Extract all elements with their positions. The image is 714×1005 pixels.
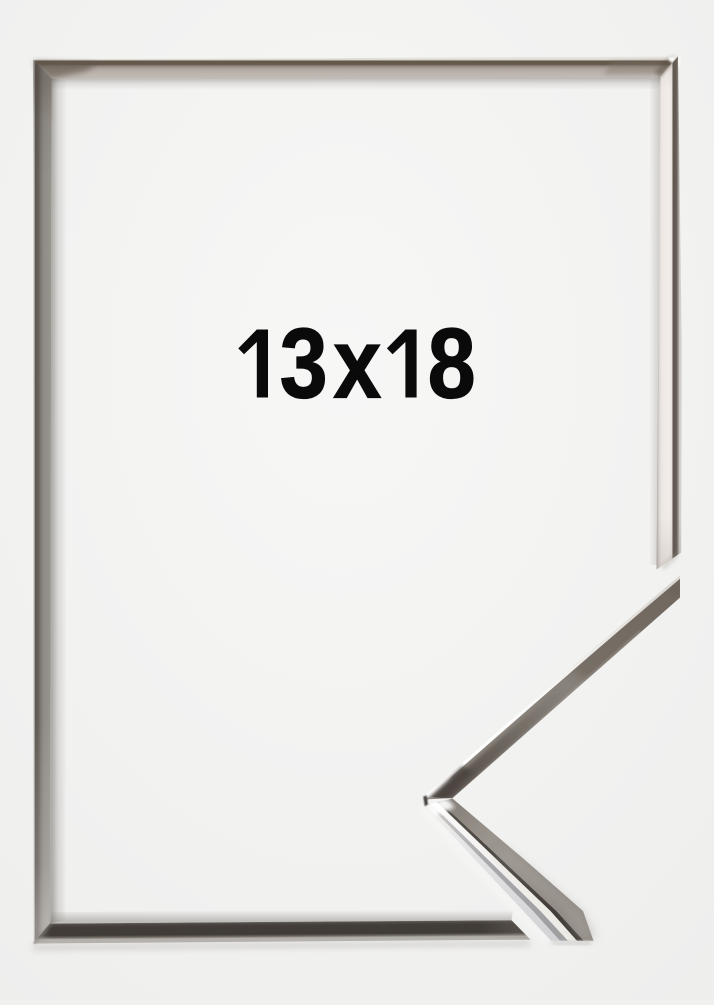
svg-text:x: x [333, 308, 381, 419]
svg-text:3: 3 [280, 308, 328, 419]
svg-text:8: 8 [428, 308, 476, 419]
